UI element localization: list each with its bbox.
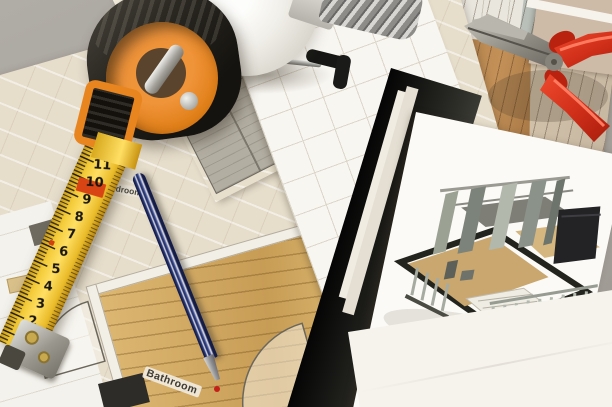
tape-rivet bbox=[23, 328, 41, 346]
tape-number: 8 bbox=[56, 208, 103, 226]
tape-number: 6 bbox=[40, 243, 87, 261]
tape-number: 4 bbox=[25, 278, 72, 296]
tape-rivet bbox=[36, 349, 52, 365]
paper-crease bbox=[357, 336, 612, 393]
tape-measure-body bbox=[78, 0, 243, 160]
red-pliers bbox=[428, 0, 612, 150]
tape-crank-knob bbox=[180, 92, 198, 110]
tape-number: 9 bbox=[63, 191, 110, 209]
tape-number: 10 bbox=[71, 174, 118, 192]
tape-number: 3 bbox=[17, 295, 64, 313]
photo-scene: Bedroom Bathroom 12 11 10 9 8 7 6 5 4 3 … bbox=[0, 0, 612, 407]
tape-number: 5 bbox=[32, 260, 79, 278]
tape-number: 7 bbox=[48, 226, 95, 244]
pen-ball-point bbox=[214, 386, 220, 392]
